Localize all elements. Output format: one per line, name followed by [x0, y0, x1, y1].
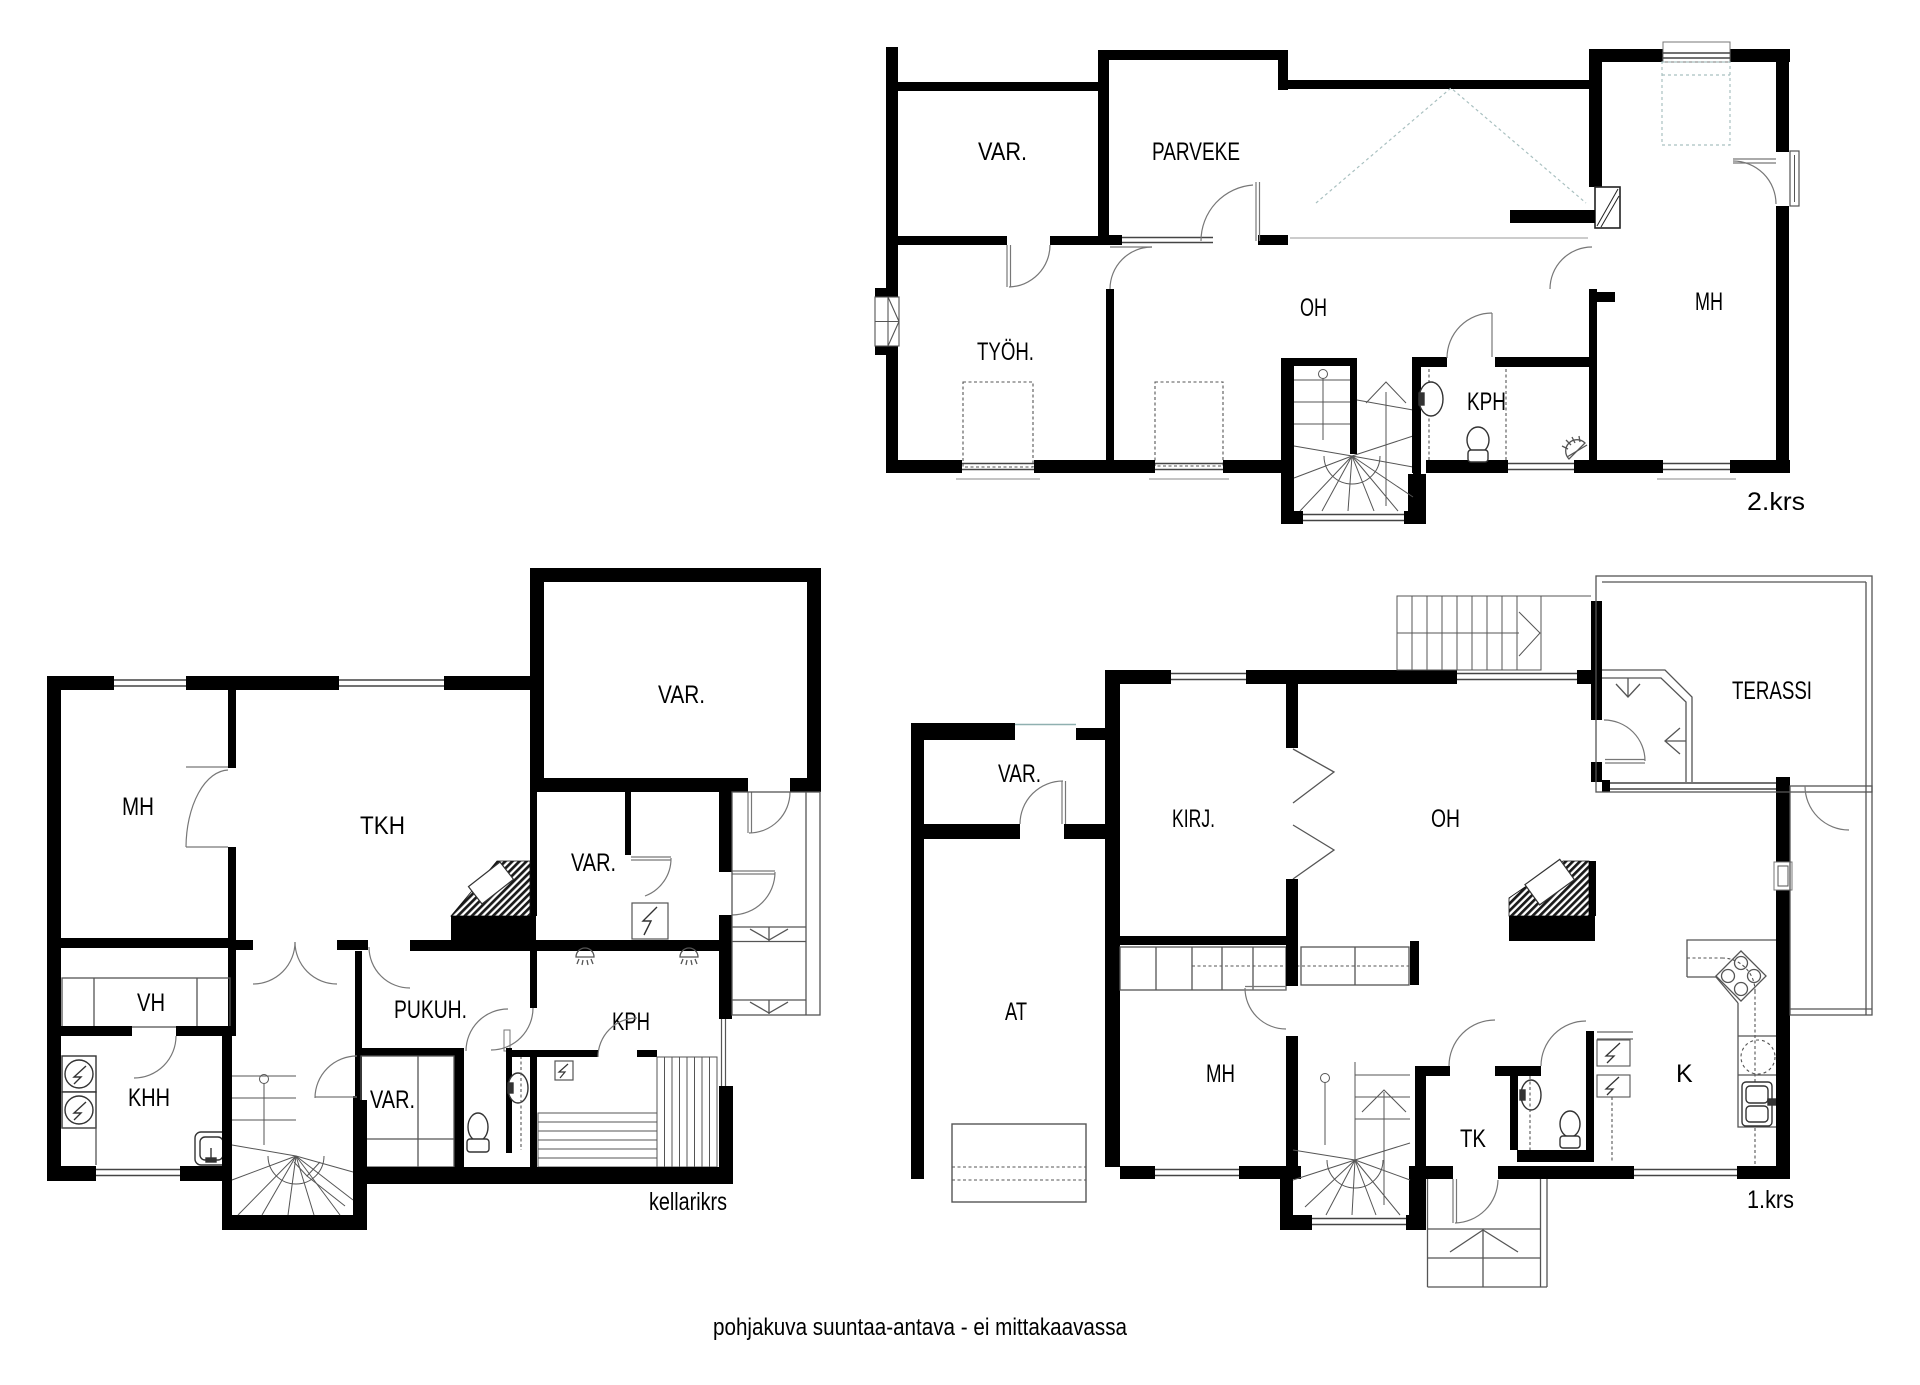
svg-text:PUKUH.: PUKUH. [394, 996, 467, 1024]
svg-text:KHH: KHH [128, 1084, 170, 1112]
svg-text:VAR.: VAR. [998, 760, 1041, 788]
svg-text:TK: TK [1460, 1125, 1486, 1153]
svg-text:KPH: KPH [612, 1008, 650, 1036]
svg-text:AT: AT [1005, 998, 1027, 1026]
svg-text:TERASSI: TERASSI [1732, 677, 1812, 705]
svg-text:kellarikrs: kellarikrs [649, 1188, 727, 1216]
svg-text:VAR.: VAR. [658, 681, 705, 709]
svg-text:KPH: KPH [1467, 388, 1506, 416]
svg-text:TYÖH.: TYÖH. [977, 338, 1034, 366]
svg-text:OH: OH [1300, 294, 1327, 322]
svg-text:PARVEKE: PARVEKE [1152, 138, 1240, 166]
svg-text:VH: VH [137, 989, 165, 1017]
svg-text:VAR.: VAR. [571, 849, 616, 877]
svg-text:pohjakuva suuntaa-antava - ei: pohjakuva suuntaa-antava - ei mittakaava… [713, 1314, 1128, 1341]
svg-text:2.krs: 2.krs [1747, 488, 1805, 516]
svg-text:VAR.: VAR. [370, 1086, 415, 1114]
svg-text:MH: MH [1206, 1060, 1235, 1088]
svg-text:K: K [1676, 1060, 1693, 1088]
svg-text:MH: MH [1695, 288, 1723, 316]
svg-text:TKH: TKH [360, 812, 405, 840]
svg-text:OH: OH [1431, 805, 1460, 833]
svg-text:KIRJ.: KIRJ. [1172, 805, 1215, 833]
svg-text:1.krs: 1.krs [1747, 1186, 1794, 1214]
svg-text:VAR.: VAR. [978, 138, 1027, 166]
svg-text:MH: MH [122, 793, 154, 821]
